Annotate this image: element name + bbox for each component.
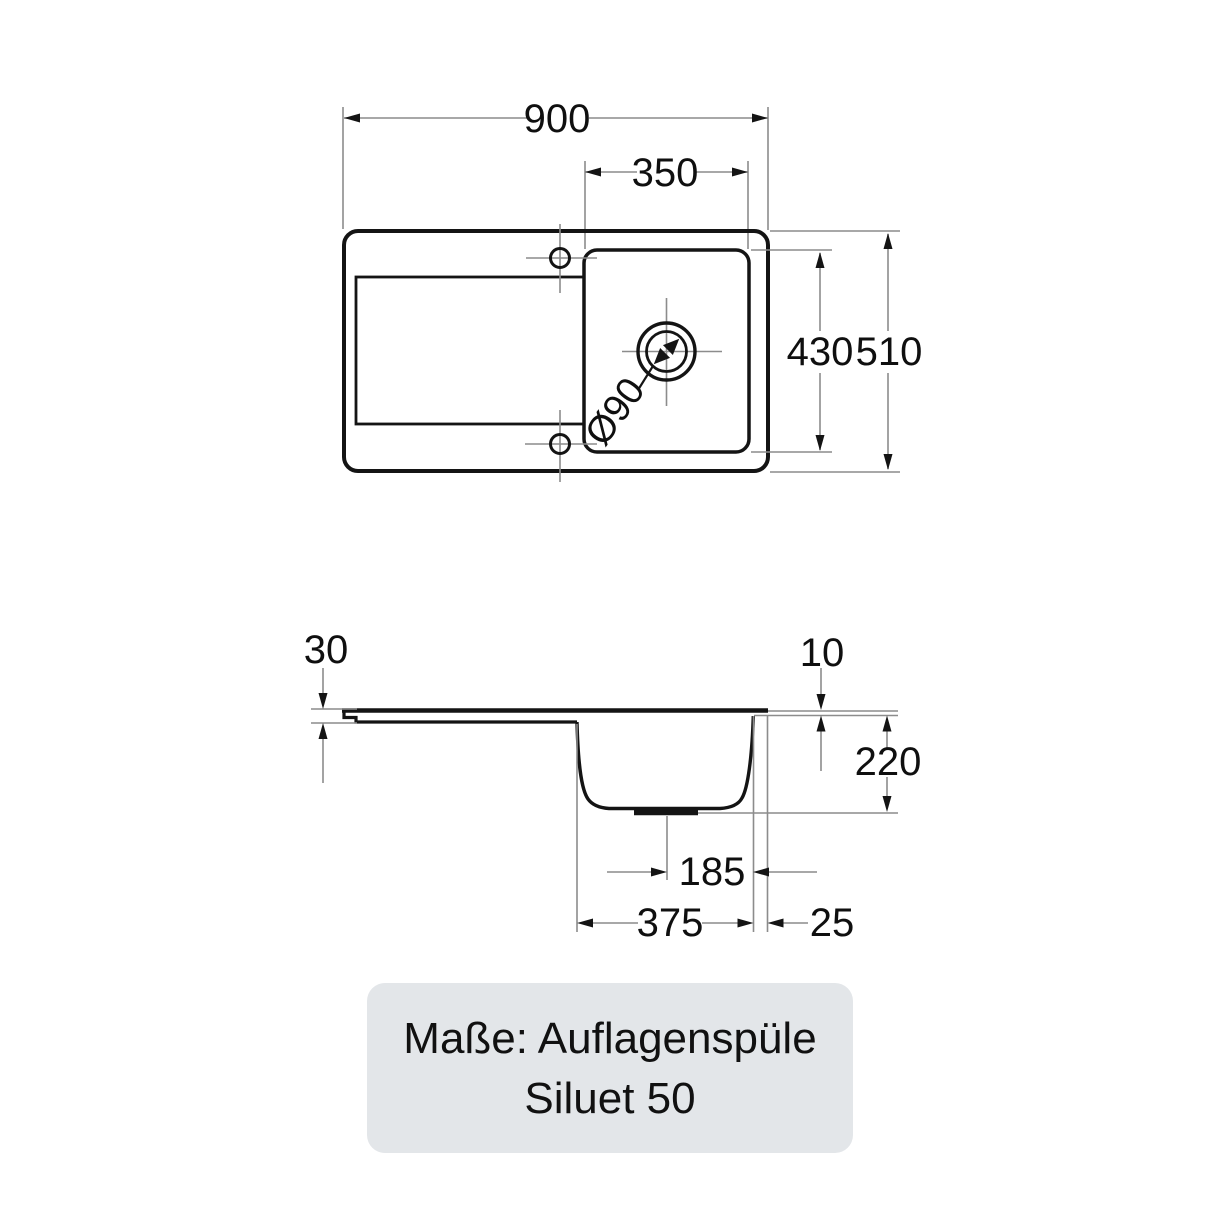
dim-bowl-width-label: 350 bbox=[632, 151, 699, 195]
drawing-canvas: 900 350 bbox=[0, 0, 1214, 1214]
arrow-left-icon bbox=[577, 919, 593, 928]
arrow-up-icon bbox=[817, 716, 826, 732]
arrow-right-icon bbox=[651, 868, 667, 877]
tap-hole-top bbox=[526, 224, 597, 293]
arrow-down-icon bbox=[816, 435, 825, 451]
sink-dimension-drawing: 900 350 bbox=[0, 0, 1214, 1214]
dim-bowl-height-group: 220 bbox=[698, 716, 921, 814]
dim-overall-width-label: 900 bbox=[524, 97, 591, 141]
drain-icon: Ø90 bbox=[577, 298, 722, 453]
arrow-right-icon bbox=[738, 919, 754, 928]
arrow-left-icon bbox=[585, 168, 601, 177]
dim-rim-overhang-label: 25 bbox=[810, 901, 855, 945]
arrow-right-icon bbox=[752, 114, 768, 123]
caption-box: Maße: Auflagenspüle Siluet 50 bbox=[367, 983, 853, 1153]
caption-line1: Maße: Auflagenspüle bbox=[403, 1014, 816, 1063]
arrow-down-icon bbox=[817, 694, 826, 710]
dim-drain-to-edge-label: 185 bbox=[679, 850, 746, 894]
arrow-up-icon bbox=[884, 233, 893, 249]
dim-left-rim-height-group: 30 bbox=[304, 628, 357, 783]
arrow-up-icon bbox=[883, 716, 892, 732]
side-view: 30 10 220 185 bbox=[304, 628, 922, 945]
arrow-left-icon bbox=[344, 114, 360, 123]
arrow-right-icon bbox=[732, 168, 748, 177]
dim-bowl-outer-width-group: 375 bbox=[577, 901, 754, 945]
dim-bowl-outer-width-label: 375 bbox=[637, 901, 704, 945]
dim-bowl-depth-label: 430 bbox=[787, 330, 854, 374]
dim-rim-overhang-group: 25 bbox=[768, 901, 855, 945]
dim-right-rim-height-label: 10 bbox=[800, 631, 845, 675]
caption-background bbox=[367, 983, 853, 1153]
arrow-left-icon bbox=[768, 919, 784, 928]
arrow-down-icon bbox=[319, 693, 328, 709]
dim-bowl-width-group: 350 bbox=[585, 151, 748, 249]
dim-drain-to-edge-group: 185 bbox=[607, 850, 817, 894]
dim-bowl-height-label: 220 bbox=[855, 740, 922, 784]
arrow-up-icon bbox=[319, 723, 328, 739]
arrow-down-icon bbox=[884, 454, 893, 470]
arrow-left-icon bbox=[753, 868, 769, 877]
drainer-outline bbox=[356, 277, 584, 424]
bowl-profile bbox=[577, 716, 753, 809]
dim-left-rim-height-label: 30 bbox=[304, 628, 349, 672]
dim-overall-width-group: 900 bbox=[343, 97, 768, 230]
top-view: 900 350 bbox=[343, 97, 922, 482]
arrow-up-icon bbox=[816, 252, 825, 268]
dim-overall-depth-label: 510 bbox=[856, 330, 923, 374]
arrow-down-icon bbox=[883, 796, 892, 812]
caption-line2: Siluet 50 bbox=[524, 1074, 695, 1123]
